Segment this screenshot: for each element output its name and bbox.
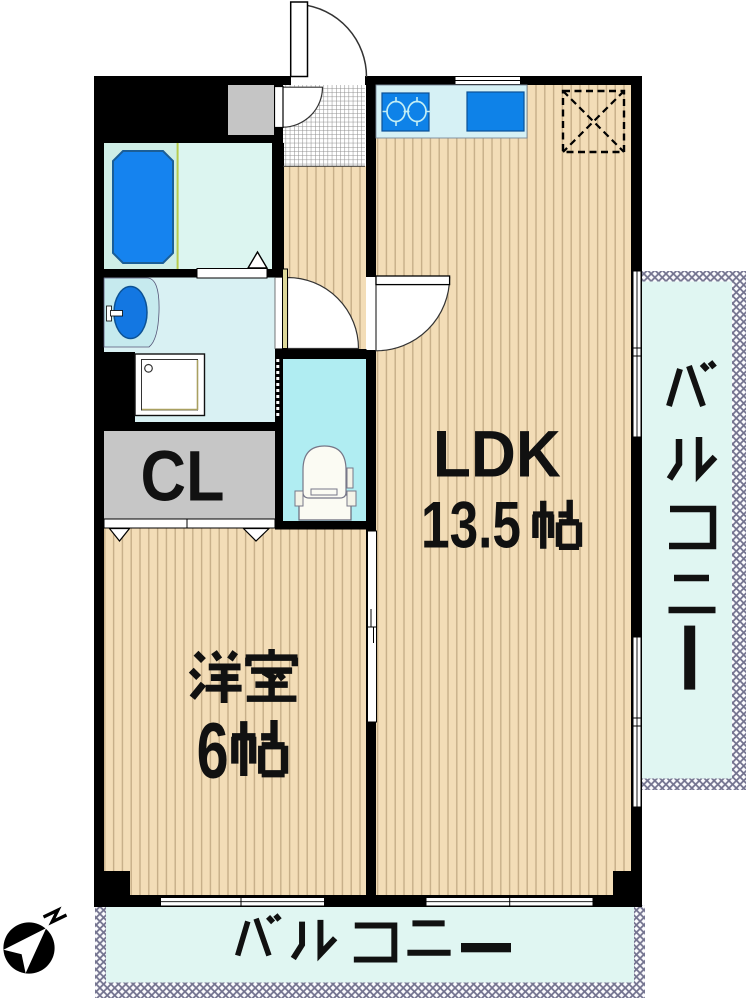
svg-text:13.5: 13.5 bbox=[421, 488, 521, 562]
svg-text:CL: CL bbox=[141, 438, 225, 517]
svg-text:6: 6 bbox=[197, 705, 229, 794]
svg-text:LDK: LDK bbox=[433, 416, 561, 490]
